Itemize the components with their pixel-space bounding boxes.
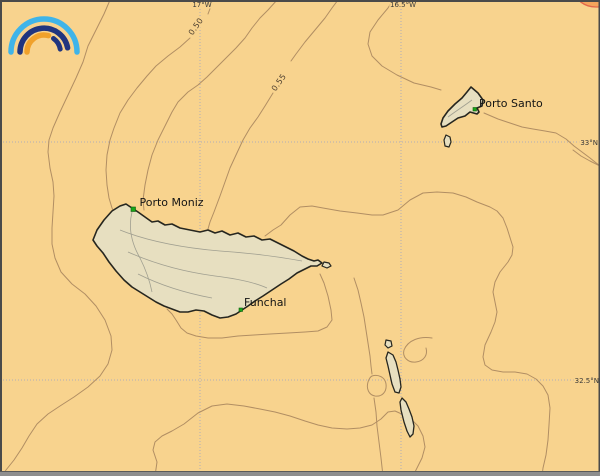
- frame-bottom: [0, 472, 600, 476]
- meridian-label-16-5w: 16.5°W: [390, 1, 416, 9]
- marker-porto-moniz: [131, 207, 136, 212]
- place-label-funchal: Funchal: [244, 296, 287, 309]
- chao-islet: [385, 340, 392, 348]
- chart-canvas[interactable]: 0.50 0.55 Porto Moniz Funchal Porto Sant…: [0, 0, 600, 476]
- marker-porto-santo: [473, 108, 477, 112]
- porto-santo-islet: [444, 135, 451, 147]
- frame-bottom-edge: [0, 471, 600, 472]
- parallel-label-33n: 33°N: [580, 139, 598, 147]
- frame-top: [0, 0, 600, 2]
- sao-lourenco-islet: [322, 262, 331, 268]
- frame-left: [0, 0, 2, 476]
- marker-funchal: [239, 308, 243, 312]
- place-label-porto-moniz: Porto Moniz: [140, 196, 204, 209]
- meridian-label-17w: 17°W: [192, 1, 211, 9]
- map-view[interactable]: 0.50 0.55 Porto Moniz Funchal Porto Sant…: [0, 0, 600, 476]
- parallel-label-32-5n: 32.5°N: [575, 377, 599, 385]
- place-label-porto-santo: Porto Santo: [479, 97, 543, 110]
